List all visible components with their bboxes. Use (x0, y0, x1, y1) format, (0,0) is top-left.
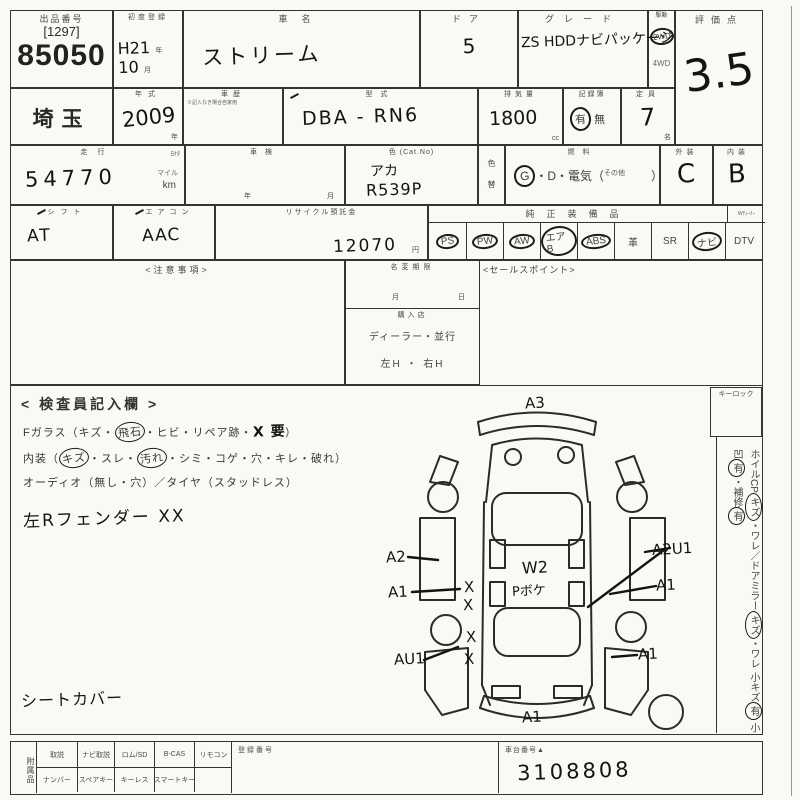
auction-sheet: 出品番号 [1297] 85050 初度登録 H21 年 10 月 車名 ストリ… (0, 0, 800, 800)
mileage-unit-mile: マイル (157, 168, 178, 178)
equipment-item: AW (503, 223, 540, 259)
color-label: 色 (Cat.No) (346, 149, 477, 157)
hand-tick (37, 209, 46, 215)
fuel-other: その他 (604, 170, 625, 177)
lot-cell: 出品番号 [1297] 85050 (10, 10, 113, 88)
accessory-item: B-CAS (154, 742, 194, 767)
registration-number-label: 登録番号 (238, 745, 499, 755)
displacement-value: 1800 (489, 106, 563, 131)
x-mark: X (464, 650, 475, 669)
equipment-item: SR (651, 223, 688, 259)
drive-label: 駆動 (649, 13, 674, 20)
aircon-label: エアコン (114, 209, 214, 217)
history-cell: 車歴 ※記入なき場合自家用 (183, 88, 283, 145)
record-book-label: 記録簿 (564, 91, 620, 99)
caution-box: <注意事項> (10, 260, 345, 385)
hand-tick (135, 209, 144, 215)
displacement-label: 排気量 (479, 91, 562, 99)
inspector-hand-note-2: シートカバー (21, 684, 124, 712)
damage-label-a1-right: A1 (638, 644, 659, 663)
doors-cell: ドア 5 (420, 10, 518, 88)
score-cell: 評価点 3.5 (675, 10, 763, 145)
drive-cell: 駆動 2WD 4WD (648, 10, 675, 88)
equipment-item: PW (466, 223, 503, 259)
fuel-options: ・D・電気（ (535, 169, 604, 183)
model-code-value: DBA - RN6 (302, 102, 478, 130)
registration-number-cell: 登録番号 (231, 742, 499, 793)
name-change-box: 名変期限 月 日 購入店 ディーラー・並行 左H ・ 右H (345, 260, 480, 385)
fglass-hand-mark: X 要 (252, 420, 285, 441)
mileage-cell: 走行 5ｹﾀ 54770 マイル km (10, 145, 185, 205)
doors-label: ドア (421, 14, 517, 24)
chassis-number-value: 3108808 (517, 753, 764, 786)
equipment-item: PS (429, 223, 466, 259)
doors-value: 5 (421, 33, 518, 60)
shaken-label: 車検 (186, 149, 344, 157)
accessory-item: ロム/SD (114, 742, 154, 767)
color-change-top: 色 (479, 158, 504, 169)
sales-point-box: <セールスポイント> (480, 260, 763, 385)
capacity-label: 定員 (622, 91, 674, 99)
region-cell: 埼玉 (10, 88, 113, 145)
accessory-item: 取説 (37, 742, 77, 767)
x-mark: X (464, 578, 475, 597)
exterior-value: C (676, 158, 712, 189)
damage-label-a3: A3 (525, 393, 546, 412)
interior-grade-value: B (727, 158, 762, 189)
accessory-item: スペアキー (77, 768, 114, 792)
roof-paint-note: Pボケ (512, 579, 547, 600)
recycle-label: リサイクル預託金 (216, 209, 427, 217)
lot-label: 出品番号 (11, 14, 112, 24)
equipment-item: ABS (577, 223, 614, 259)
paper-edge-right (791, 6, 792, 796)
accessory-item: ナビ取説 (77, 742, 114, 767)
color-change-cell: 色 替 (478, 145, 505, 205)
month-unit: 月 (144, 67, 151, 74)
damage-label-au1: AU1 (394, 649, 426, 669)
kokizu-ari-circled: 有 (745, 702, 762, 720)
bottom-strip: 附属品 取説 ナビ取説 ロム/SD B-CAS リモコン ナンバー スペアキー … (10, 741, 763, 795)
interior-circled-2: 汚れ (136, 446, 168, 469)
drive-4wd: 4WD (649, 59, 674, 68)
wheel-mirror-remark: ホイルCPキズ・ワレ／ドアミラーキズ・ワレ (748, 449, 759, 669)
equipment-item: ナビ (688, 223, 725, 259)
equipment-item: 革 (614, 223, 651, 259)
name-change-day: 日 (458, 292, 465, 302)
region-value: 埼玉 (11, 103, 112, 133)
recycle-unit: 円 (412, 245, 419, 255)
car-name-label: 車名 (184, 14, 419, 24)
accessory-item: ナンバー (37, 768, 77, 792)
accessory-item: スマートキー (154, 768, 194, 792)
roof-wave-note: W2 (522, 557, 549, 577)
shift-cell: シフト AT (10, 205, 113, 260)
equipment-items: PS PW AW エアB ABS 革 SR ナビ DTV (429, 222, 762, 259)
sales-point-label: <セールスポイント> (483, 263, 762, 276)
mileage-digits-note: 5ｹﾀ (171, 149, 180, 158)
history-note: ※記入なき場合自家用 (187, 99, 282, 106)
damage-label-a1-left: A1 (388, 582, 409, 601)
lot-bracket: [1297] (11, 24, 112, 39)
interior-circled-1: キズ (58, 446, 90, 469)
caution-label: <注意事項> (11, 265, 344, 275)
accessory-item: キーレス (114, 768, 154, 792)
model-code-cell: 型式 DBA - RN6 (283, 88, 478, 145)
first-registration-cell: 初度登録 H21 年 10 月 (113, 10, 183, 88)
grade-cell: グレード ZS HDDナビパッケージ (518, 10, 648, 88)
keylock-label: キーロック (711, 389, 761, 399)
fuel-gas-selected: G (513, 164, 537, 188)
model-year-unit: 年 (171, 132, 178, 142)
fuel-label: 燃料 (506, 149, 659, 157)
fglass-circled: 飛石 (114, 420, 146, 443)
capacity-value: 7 (640, 102, 675, 131)
damage-label-a1-right-mid: A1 (656, 575, 677, 594)
chassis-number-cell: 車台番号▲ 3108808 (498, 742, 763, 793)
equipment-tuner-note: Wﾁｭｰﾅｰ (727, 206, 765, 223)
purchase-value: ディーラー・並行 (346, 328, 479, 343)
mileage-unit-km: km (163, 180, 176, 191)
kohekomi-ari-circled: 有 (728, 459, 745, 477)
keylock-box: キーロック (710, 387, 762, 437)
grade-value: ZS HDDナビパッケージ (521, 28, 648, 52)
damage-label-a2u1: A2U1 (652, 539, 693, 559)
lot-number: 85050 (11, 39, 112, 73)
recycle-value: 12070 (333, 235, 398, 257)
displacement-cell: 排気量 1800 cc (478, 88, 563, 145)
aircon-value: AAC (142, 224, 215, 247)
car-name-value: ストリーム (202, 35, 420, 73)
record-book-cell: 記録簿 有 無 (563, 88, 621, 145)
capacity-unit: 名 (664, 132, 671, 142)
x-mark: X (466, 628, 477, 647)
exterior-cell: 外装 C (660, 145, 713, 205)
damage-label-a2: A2 (386, 547, 407, 566)
record-book-no: 無 (594, 114, 605, 126)
x-mark: X (463, 596, 474, 615)
purchase-label: 購入店 (346, 312, 479, 320)
accessory-item: リモコン (194, 742, 232, 767)
equipment-item: DTV (725, 223, 762, 259)
grade-label: グレード (519, 14, 647, 24)
equipment-item: エアB (540, 223, 577, 259)
right-remarks-column: ホイルCPキズ・ワレ／ドアミラーキズ・ワレ 小キズ有 小凹有・補修有 (716, 437, 763, 733)
model-code-label: 型式 (284, 91, 477, 99)
shaken-year-unit: 年 (244, 191, 251, 201)
shaken-cell: 車検 年 月 (185, 145, 345, 205)
model-year-value: 2009 (121, 102, 183, 132)
record-book-yes-selected: 有 (569, 106, 592, 132)
fuel-cell: 燃料 G・D・電気（その他） (505, 145, 660, 205)
interior-grade-label: 内装 (714, 149, 762, 157)
car-name-cell: 車名 ストリーム (183, 10, 420, 88)
hand-drawn-circle-stamp (649, 695, 683, 729)
color-cell: 色 (Cat.No) アカ R539P (345, 145, 478, 205)
wheel-kizu-circled: キズ (745, 493, 762, 521)
model-year-label: 年式 (114, 91, 182, 99)
exterior-label: 外装 (661, 149, 712, 157)
shift-value: AT (27, 224, 113, 247)
score-value: 3.5 (681, 42, 765, 103)
first-registration-label: 初度登録 (114, 14, 182, 22)
capacity-cell: 定員 7 名 (621, 88, 675, 145)
hoshu-ari-circled: 有 (728, 507, 745, 525)
name-change-month: 月 (392, 292, 399, 302)
equipment-label: 純正装備品 (429, 209, 727, 219)
aircon-cell: エアコン AAC (113, 205, 215, 260)
interior-grade-cell: 内装 B (713, 145, 763, 205)
color-change-bottom: 替 (479, 179, 504, 190)
inspector-hand-note-1: 左Rフェンダー XX (23, 501, 186, 532)
steering-options: 左H ・ 右H (346, 355, 479, 370)
year-unit: 年 (155, 48, 162, 55)
score-label: 評価点 (676, 15, 762, 25)
accessory-item (194, 768, 232, 792)
recycle-cell: リサイクル預託金 12070 円 (215, 205, 428, 260)
accessories-grid: 取説 ナビ取説 ロム/SD B-CAS リモコン ナンバー スペアキー キーレス… (36, 742, 232, 793)
accessories-label: 附属品 (11, 742, 36, 796)
mileage-label: 走行 (11, 149, 184, 157)
history-label: 車歴 (184, 91, 282, 99)
model-year-cell: 年式 2009 年 (113, 88, 183, 145)
damage-label-a1-bottom: A1 (522, 707, 543, 726)
shaken-month-unit: 月 (327, 191, 334, 201)
displacement-unit: cc (552, 135, 559, 142)
first-registration-value: H21 年 10 月 (117, 37, 182, 77)
color-value-line2: R539P (366, 177, 478, 200)
shift-label: シフト (11, 209, 112, 217)
name-change-label: 名変期限 (346, 264, 479, 272)
equipment-cell: 純正装備品 Wﾁｭｰﾅｰ PS PW AW エアB ABS 革 SR ナビ DT… (428, 205, 763, 260)
mirror-kizu-circled: キズ (745, 611, 762, 639)
